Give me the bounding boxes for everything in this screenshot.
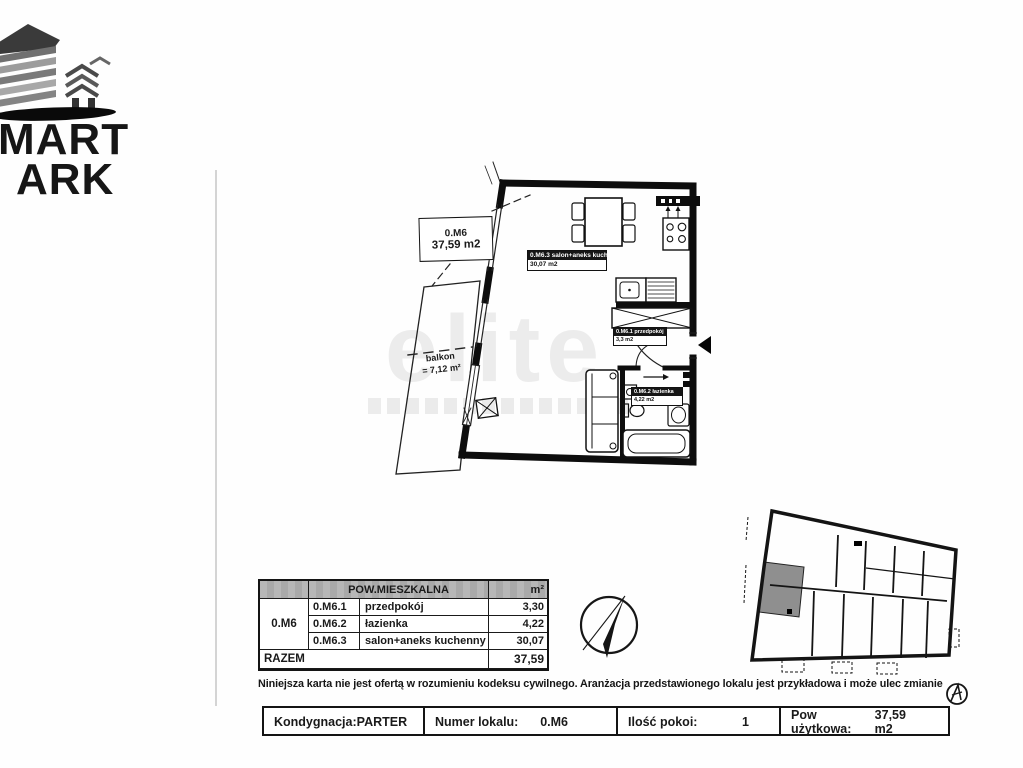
building-key-plan [742,505,967,677]
north-arrow-icon [575,588,647,662]
table-row-area: 3,30 [489,599,547,616]
scanned-floorplan-card: MART ARK elite [0,0,1023,768]
table-row-code: 0.M6.2 [309,616,360,633]
area-table-unit: m² [489,581,547,599]
info-cell-usable-area: Pow użytkowa: 37,59 m2 [781,708,942,736]
table-row-name: przedpokój [360,599,489,616]
partition-wall [616,302,693,308]
area-table: POW.MIESZKALNA m² 0.M6 0.M6.1 przedpokój… [258,579,549,671]
unit-code: 0.M6 [445,227,468,239]
table-row-code: 0.M6.3 [309,633,360,650]
bathtub-icon [623,430,690,457]
info-cell-room-count: Ilość pokoi: 1 [618,708,781,736]
wardrobe-icon [612,308,692,328]
room-label-bathroom: 0.M6.2 łazienka 4,22 m2 [631,387,683,406]
table-row-name: salon+aneks kuchenny [360,633,489,650]
table-row-name: łazienka [360,616,489,633]
sofa-icon [586,370,618,452]
area-table-title: POW.MIESZKALNA [309,581,489,599]
unit-label-box: 0.M6 37,59 m2 [418,216,493,262]
kitchen-counter-icon [616,278,676,302]
floor-plan-drawing [380,158,720,493]
unit-info-bar: Kondygnacja: PARTER Numer lokalu: 0.M6 I… [262,706,950,736]
area-table-group-code: 0.M6 [260,599,309,650]
table-row-area: 30,07 [489,633,547,650]
unit-area: 37,59 m2 [432,238,481,251]
table-row-area: 4,22 [489,616,547,633]
table-row-code: 0.M6.1 [309,599,360,616]
logo-text-line2: ARK [16,158,114,202]
washbasin-icon [668,404,689,426]
balcony-door [463,365,480,426]
area-table-corner-cell [260,581,309,599]
scan-fold-line [215,170,217,706]
room-label-salon: 0.M6.3 salon+aneks kuch. 30,07 m2 [527,250,607,271]
info-cell-unit-number: Numer lokalu: 0.M6 [425,708,618,736]
stove-icon [663,218,689,250]
area-table-total-label: RAZEM [260,650,489,669]
logo-buildings-icon [0,14,129,122]
stool-icon [476,398,498,419]
dining-table-icon [572,198,635,246]
room-label-hall: 0.M6.1 przedpokój 3,3 m2 [613,327,667,346]
area-table-total-value: 37,59 [489,650,547,669]
entrance-marker-icon [698,336,711,354]
architect-signature-icon [944,679,970,707]
disclaimer-text: Niniejsza karta nie jest ofertą w rozumi… [258,678,950,690]
toilet-icon [624,404,645,417]
highlighted-unit [759,562,804,617]
info-cell-floor: Kondygnacja: PARTER [264,708,425,736]
direction-arrow-icon [644,374,669,380]
